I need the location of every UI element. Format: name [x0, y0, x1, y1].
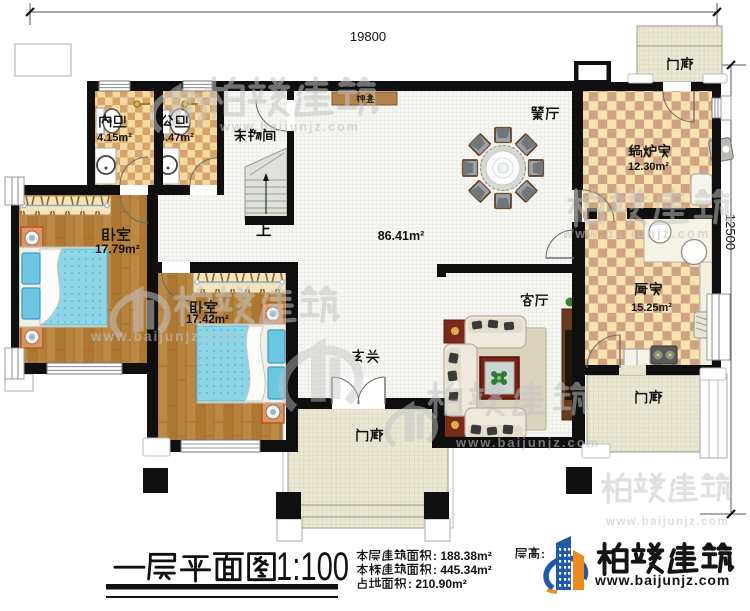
svg-text:www.baijunjz.com: www.baijunjz.com — [455, 435, 600, 450]
svg-text:: 210.90m²: : 210.90m² — [408, 577, 467, 591]
svg-text:1:100: 1:100 — [276, 545, 349, 590]
svg-text:: 188.38m²: : 188.38m² — [433, 549, 492, 563]
svg-text:17.79m²: 17.79m² — [95, 242, 140, 256]
svg-text:www.baijunjz.com: www.baijunjz.com — [90, 329, 240, 344]
svg-text:www.baijunjz.com: www.baijunjz.com — [562, 227, 711, 241]
svg-text::: : — [541, 547, 545, 561]
svg-text:19800: 19800 — [350, 29, 386, 44]
svg-text:: 445.34m²: : 445.34m² — [433, 563, 492, 577]
svg-text:www.baijunjz.com: www.baijunjz.com — [605, 516, 729, 528]
svg-text:www.baijunjz.com: www.baijunjz.com — [594, 572, 730, 588]
svg-text:86.41m²: 86.41m² — [378, 229, 425, 243]
svg-text:4.47m²: 4.47m² — [159, 132, 194, 144]
svg-text:4.15m²: 4.15m² — [97, 132, 132, 144]
svg-text:12.30m²: 12.30m² — [628, 161, 669, 173]
svg-text:15.25m²: 15.25m² — [631, 302, 672, 314]
svg-text:17.42m²: 17.42m² — [186, 314, 229, 326]
